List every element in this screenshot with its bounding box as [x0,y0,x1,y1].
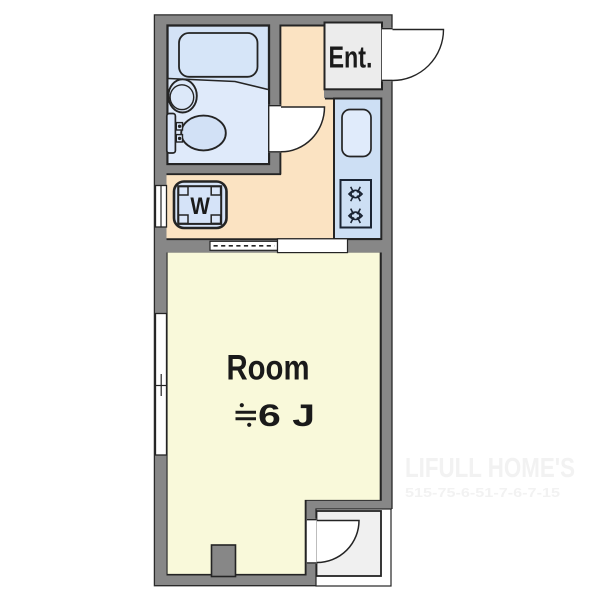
svg-text:LIFULL HOME'S: LIFULL HOME'S [405,452,575,483]
svg-text:Room: Room [227,349,310,388]
svg-text:W: W [190,193,210,220]
svg-text:6 J: 6 J [258,397,315,433]
svg-text:Ent.: Ent. [329,40,373,75]
svg-text:515-75-6-51-7-6-7-15: 515-75-6-51-7-6-7-15 [405,485,560,500]
